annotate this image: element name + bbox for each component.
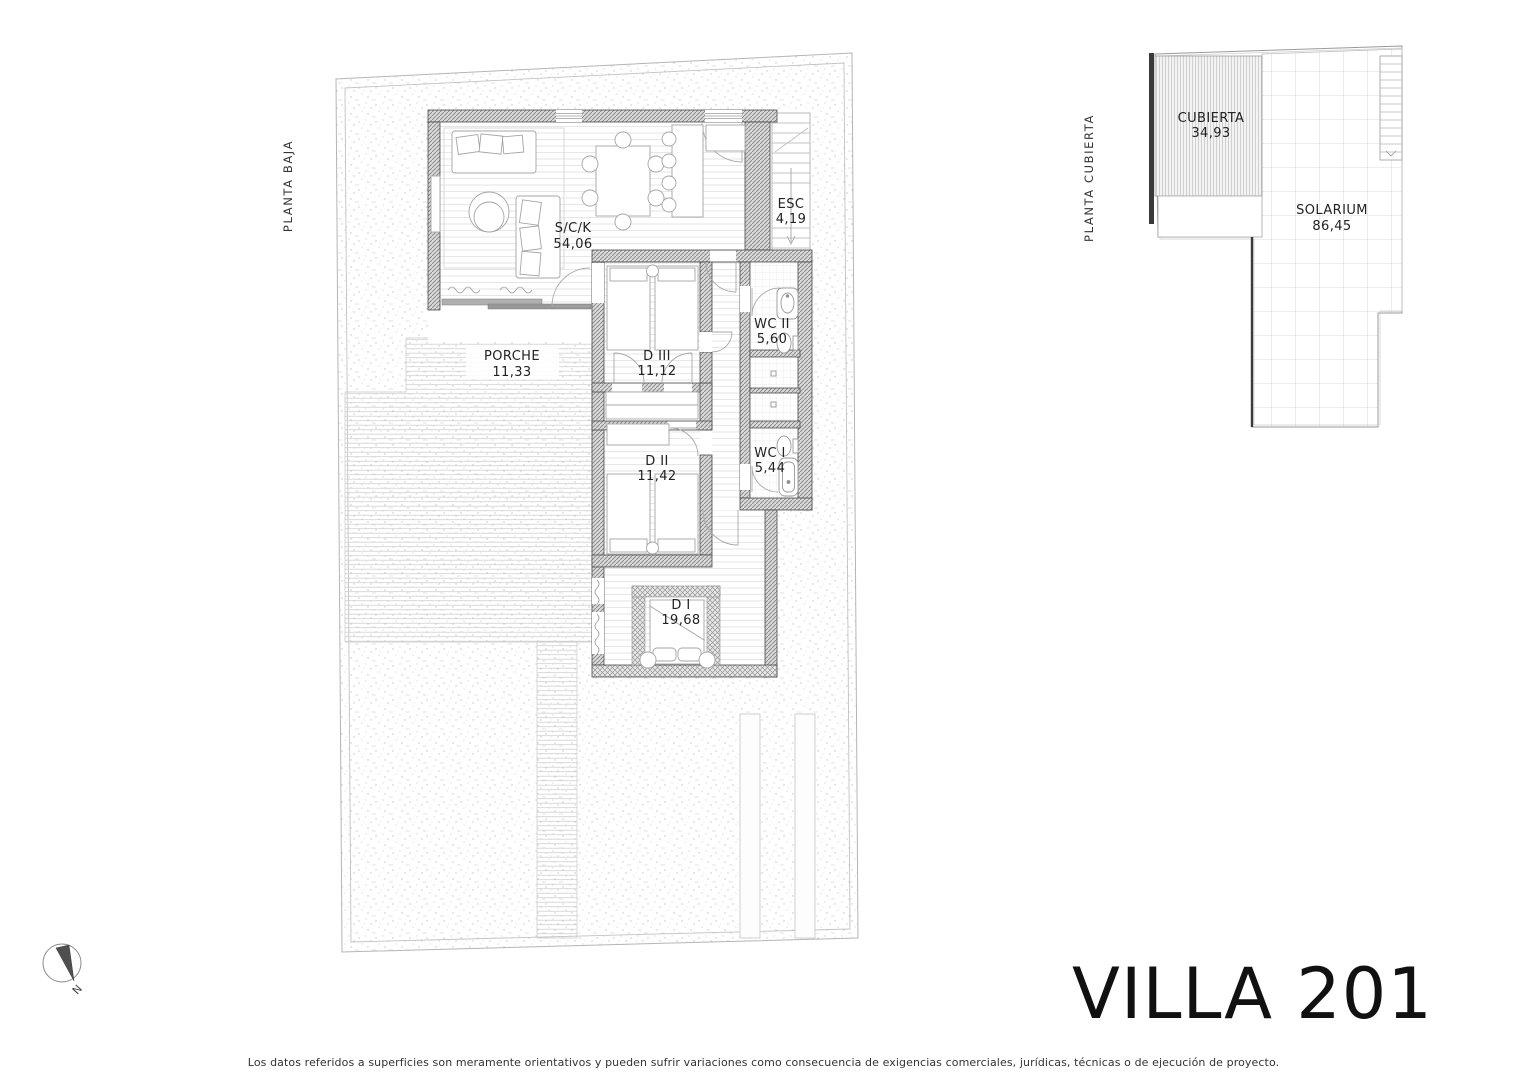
room-area-porche: 11,33 [492,365,531,380]
wardrobe [606,392,698,419]
ground-floor-plan: S/C/K 54,06 ESC 4,19 PORCHE 11,33 D III … [281,53,858,952]
dining-table [596,146,650,216]
room-label-solarium: SOLARIUM [1296,203,1368,218]
stool [662,154,676,168]
pillow [699,652,715,668]
plan-drawing: S/C/K 54,06 ESC 4,19 PORCHE 11,33 D III … [0,0,1527,1080]
stool [662,132,676,146]
room-label-wc2: WC II [754,317,790,332]
stool [662,198,676,212]
room-label-porche: PORCHE [484,349,540,364]
chair [582,190,598,206]
room-area-esc: 4,19 [776,212,807,227]
disclaimer-text: Los datos referidos a superficies son me… [0,1056,1527,1069]
room-area-d3: 11,12 [637,364,676,379]
room-area-wc1: 5,44 [755,461,786,476]
roof-plan: CUBIERTA 34,93 SOLARIUM 86,45 PLANTA CUB… [1082,46,1402,427]
path-strip-1 [740,714,760,938]
wardrobe-u [632,586,720,597]
floorplan-sheet: S/C/K 54,06 ESC 4,19 PORCHE 11,33 D III … [0,0,1527,1080]
kitchen-counter [672,125,703,217]
sliding-door-leaf [488,304,592,309]
room-area-sck: 54,06 [553,237,592,252]
villa-title: VILLA 201 [1072,958,1433,1032]
chair [648,156,664,172]
room-area-d2: 11,42 [637,469,676,484]
room-label-d1: D I [671,598,690,613]
stairs-esc [772,113,810,261]
room-label-esc: ESC [778,197,805,212]
roof-stairs [1380,56,1402,160]
room-area-wc2: 5,60 [757,332,788,347]
roof-lower-block [1158,196,1262,237]
solarium-area [1252,49,1402,427]
pillow [640,652,656,668]
room-area-d1: 19,68 [661,613,700,628]
north-arrow: N [43,944,85,997]
roof-plan-title: PLANTA CUBIERTA [1082,114,1096,242]
chair [582,156,598,172]
tv-board [431,176,440,232]
room-label-d3: D III [643,349,671,364]
north-needle [56,945,74,981]
room-label-sck: S/C/K [555,221,592,236]
north-letter: N [70,982,85,997]
wardrobe [607,424,669,445]
room-label-cubierta: CUBIERTA [1178,111,1245,126]
stool [662,176,676,190]
room-label-wc1: WC I [754,446,786,461]
room-label-d2: D II [645,454,668,469]
nightstand [647,542,659,554]
deck-walkway [537,642,577,938]
kitchen-cabinet [706,125,745,151]
roof-edge-bar [1149,53,1154,224]
chair [648,190,664,206]
ground-plan-title: PLANTA BAJA [281,140,295,232]
chair [615,214,631,230]
room-area-solarium: 86,45 [1312,219,1351,234]
room-area-cubierta: 34,93 [1191,126,1230,141]
path-strip-2 [795,714,815,938]
chair [615,132,631,148]
nightstand [647,265,659,277]
